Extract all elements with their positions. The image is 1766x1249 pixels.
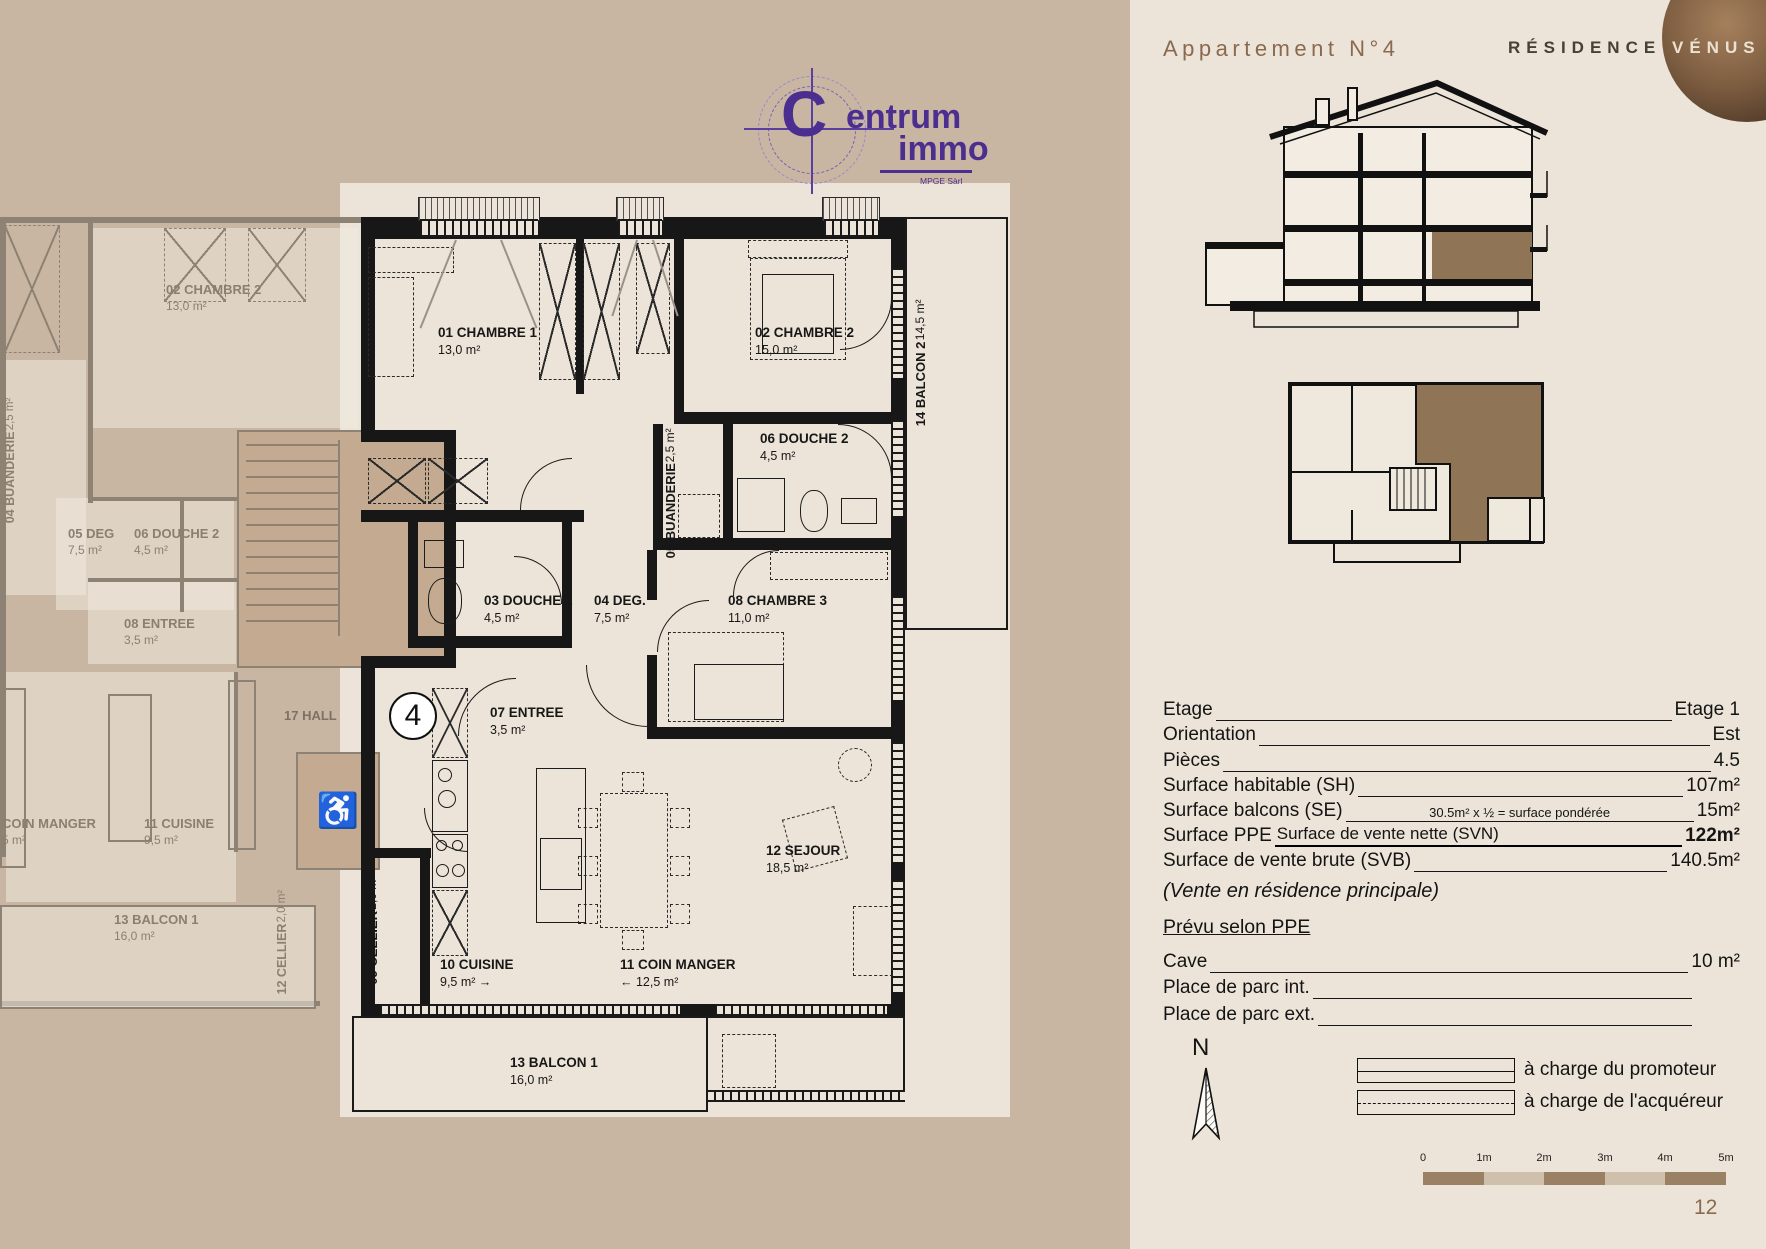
furniture-wardrobe (368, 277, 414, 377)
furniture-closet (428, 458, 488, 504)
detail-row-surface-habitable: Surface habitable (SH)107m² (1163, 772, 1740, 797)
room-label: 03 DOUCHE 14,5 m² (484, 592, 573, 626)
ppe-heading: Prévu selon PPE (1163, 916, 1310, 939)
furniture-dining-table (600, 793, 668, 928)
scale-bar (1423, 1172, 1726, 1185)
furniture-bed (694, 664, 784, 720)
compass-north-label: N (1192, 1034, 1209, 1062)
apartment-details-list: EtageEtage 1 OrientationEst Pièces4.5 Su… (1163, 696, 1740, 872)
direction-arrow: → (479, 975, 492, 989)
legend-box-promoteur (1357, 1058, 1515, 1083)
furniture-sofa (853, 906, 893, 976)
faded-room-label: 02 CHAMBRE 213,0 m² (166, 282, 261, 314)
logo-initial: C (781, 82, 827, 146)
room-label: 05 BUANDERIE2,5 m² (664, 428, 678, 558)
detail-row-pieces: Pièces4.5 (1163, 746, 1740, 771)
scale-tick: 1m (1476, 1152, 1491, 1164)
window-sill (822, 197, 880, 221)
furniture-chair (622, 930, 644, 950)
room-label: 02 CHAMBRE 215,0 m² (755, 324, 854, 358)
fixture-sink (424, 540, 464, 568)
direction-arrow: ← (620, 975, 633, 989)
legend-box-acquereur (1357, 1090, 1515, 1115)
leader-line (1358, 772, 1683, 797)
furniture-kitchen-unit (432, 890, 468, 956)
wall (674, 239, 684, 412)
faded-room-label: 12 CELLIER2,0 m² (276, 890, 290, 994)
stair-step (246, 524, 338, 526)
faded-room-label: COIN MANGER5 m² (2, 816, 96, 848)
window (380, 1004, 680, 1016)
stair-step (246, 476, 338, 478)
logo-subtitle: MPGE Sàrl (920, 176, 963, 186)
wall (0, 217, 361, 223)
scale-tick: 5m (1718, 1152, 1733, 1164)
furniture-wardrobe (368, 247, 454, 273)
scale-segment (1423, 1172, 1484, 1185)
furniture-closet (368, 458, 426, 504)
legend-solid-line (1358, 1071, 1514, 1072)
stair-step (246, 588, 338, 590)
window (891, 742, 905, 862)
scale-tick: 3m (1597, 1152, 1612, 1164)
faded-room-label: 04 BUANDERIE2,5 m² (4, 398, 18, 523)
wall (723, 424, 733, 550)
room-label: 10 CUISINE9,5 m² → (440, 956, 514, 990)
scale-segment (1544, 1172, 1605, 1185)
wall (420, 848, 430, 1004)
fixture-burner (436, 864, 449, 877)
stair-step (246, 508, 338, 510)
window (618, 219, 662, 237)
page-title: Appartement N°4 (1163, 36, 1400, 62)
stair-step (246, 604, 338, 606)
wall (562, 522, 572, 648)
stair-step (246, 556, 338, 558)
room-label: 08 CHAMBRE 311,0 m² (728, 592, 827, 626)
scale-segment (1665, 1172, 1726, 1185)
furniture-chair (578, 904, 598, 924)
leader-line (1216, 696, 1672, 721)
vente-note: (Vente en résidence principale) (1163, 880, 1439, 903)
room-label: 04 DEG.7,5 m² (594, 592, 646, 626)
fixture-sink-bowl (438, 768, 452, 782)
leader-line (1318, 999, 1692, 1026)
scale-tick: 4m (1657, 1152, 1672, 1164)
leader-line (1223, 746, 1711, 771)
window-sill (616, 197, 664, 221)
window (891, 420, 905, 516)
logo-underline (880, 170, 972, 173)
wall (88, 223, 93, 503)
wall (653, 538, 905, 550)
wall (674, 412, 905, 424)
fixture-toilet (800, 490, 828, 532)
room-label: 01 CHAMBRE 113,0 m² (438, 324, 537, 358)
detail-row-orientation: OrientationEst (1163, 721, 1740, 746)
scale-tick: 2m (1536, 1152, 1551, 1164)
furniture-chair (670, 808, 690, 828)
leader-line (1313, 973, 1692, 1000)
room-label: 06 DOUCHE 24,5 m² (760, 430, 849, 464)
furniture-chair (670, 904, 690, 924)
stair-step (246, 492, 338, 494)
faded-room-label: 08 ENTREE3,5 m² (124, 616, 195, 648)
furniture-bed-head (748, 240, 848, 258)
room-label: 11 COIN MANGER← 12,5 m² (620, 956, 736, 990)
faded-room-label: 13 BALCON 116,0 m² (114, 912, 199, 944)
stair-step (246, 460, 338, 462)
stair-rail (338, 440, 340, 636)
logo-word: entrum (846, 100, 961, 134)
wall (647, 550, 657, 600)
window (824, 219, 878, 237)
fixture-shower (737, 478, 785, 532)
brand-venus: VÉNUS (1672, 38, 1761, 58)
wall (361, 656, 456, 668)
wall (653, 424, 663, 550)
room-label: 12 SEJOUR18,5 m² (766, 842, 840, 876)
wheelchair-icon: ♿ (317, 791, 359, 831)
fixture-sink-bowl (438, 790, 456, 808)
furniture-closet (539, 243, 576, 380)
stair-step (246, 540, 338, 542)
wall (408, 636, 572, 648)
wall (361, 430, 456, 442)
leader-line (1259, 721, 1710, 746)
detail-row-surface-ppe: Surface PPE Surface de vente nette (SVN)… (1163, 822, 1740, 847)
window (891, 880, 905, 992)
faded-wardrobe (4, 225, 60, 353)
stair-step (246, 620, 338, 622)
detail-row-cave: Cave10 m² (1163, 946, 1740, 973)
wall (88, 497, 238, 501)
room-label: 09 CELLIER2,0 m² (366, 876, 380, 985)
wall (647, 727, 905, 739)
detail-row-parc-ext: Place de parc ext. (1163, 999, 1740, 1026)
window (715, 1004, 887, 1016)
window (420, 219, 538, 237)
wall (88, 578, 238, 582)
window (891, 596, 905, 700)
furniture-chair (578, 808, 598, 828)
scale-segment (1605, 1172, 1665, 1185)
compass-arrow-icon (1186, 1064, 1226, 1144)
fixture-burner (452, 864, 465, 877)
stair-step (246, 444, 338, 446)
brand-residence: RÉSIDENCE (1508, 38, 1661, 58)
furniture-chair (622, 772, 644, 792)
faded-kitchen-counter (228, 680, 256, 850)
stair-step (246, 572, 338, 574)
leader-line (1414, 847, 1667, 872)
detail-row-surface-balcons: Surface balcons (SE) 30.5m² x ½ = surfac… (1163, 797, 1740, 822)
detail-row-parc-int: Place de parc int. (1163, 973, 1740, 1000)
scale-tick: 0 (1420, 1152, 1426, 1164)
furniture-wardrobe (770, 552, 888, 580)
scale-segment (1484, 1172, 1544, 1185)
detail-row-surface-vente-brute: Surface de vente brute (SVB)140.5m² (1163, 847, 1740, 872)
window (706, 1090, 905, 1102)
room-label: 14 BALCON 214,5 m² (914, 300, 928, 426)
wall (361, 510, 584, 522)
furniture-washer (678, 494, 720, 538)
furniture-chair (670, 856, 690, 876)
window-sill (418, 197, 540, 221)
unit-number-badge: 4 (389, 692, 437, 740)
legend-label-acquereur: à charge de l'acquéreur (1524, 1091, 1723, 1113)
legend-label-promoteur: à charge du promoteur (1524, 1059, 1716, 1081)
furniture-chair (578, 856, 598, 876)
wall (408, 522, 418, 648)
floor-position-thumbnail (1282, 380, 1552, 580)
fixture-toilet (428, 578, 462, 624)
ponderation-note: 30.5m² x ½ = surface pondérée (1429, 805, 1610, 820)
logo-word: immo (898, 132, 989, 166)
ppe-details-list: Cave10 m² Place de parc int. Place de pa… (1163, 946, 1740, 1026)
room-label: 13 BALCON 116,0 m² (510, 1054, 598, 1088)
brochure-page: ♿ 02 CHAMBRE 213,0 m² 04 BUANDERIE2,5 m²… (0, 0, 1766, 1249)
leader-line: Surface de vente nette (SVN) (1275, 822, 1682, 847)
leader-line: 30.5m² x ½ = surface pondérée (1346, 797, 1694, 822)
fixture-sink (841, 498, 877, 524)
furniture-closet (636, 243, 670, 354)
leader-line (1210, 946, 1688, 973)
detail-row-etage: EtageEtage 1 (1163, 696, 1740, 721)
furniture-planter (722, 1034, 776, 1088)
faded-room-label: 05 DEG7,5 m² (68, 526, 114, 558)
faded-room-label: 06 DOUCHE 24,5 m² (134, 526, 219, 558)
window (891, 268, 905, 378)
faded-room-label: 17 HALL (284, 708, 337, 725)
page-number: 12 (1694, 1196, 1717, 1220)
ceiling-lamp-symbol (838, 748, 872, 782)
legend-dashed-line (1358, 1103, 1514, 1104)
furniture-kitchen-island-top (540, 838, 582, 890)
svn-note: Surface de vente nette (SVN) (1277, 824, 1499, 844)
faded-room-label: 11 CUISINE9,5 m² (144, 816, 214, 848)
building-section-drawing (1200, 75, 1550, 335)
room-label: 07 ENTREE3,5 m² (490, 704, 564, 738)
